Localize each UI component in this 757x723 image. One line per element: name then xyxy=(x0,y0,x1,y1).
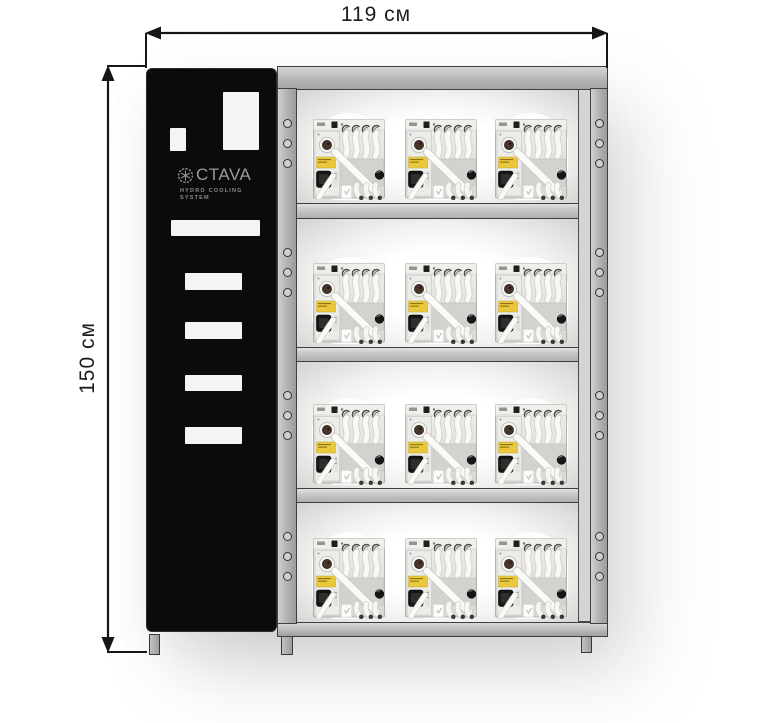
cooling-unit xyxy=(494,531,568,619)
shelf-cell-4 xyxy=(297,503,578,622)
unit-port xyxy=(332,407,338,414)
mounting-hole xyxy=(595,139,604,148)
panel-cutout-3 xyxy=(185,375,242,391)
cooling-unit xyxy=(494,112,568,200)
mounting-hole xyxy=(595,411,604,420)
cooling-unit xyxy=(494,256,568,344)
arrowhead-right xyxy=(592,27,608,40)
shelf-cell-1 xyxy=(297,90,578,203)
mounting-hole xyxy=(595,391,604,400)
mounting-hole xyxy=(283,119,292,128)
arrowhead-bottom xyxy=(102,637,115,653)
shelf-divider-1 xyxy=(297,203,578,219)
mounting-hole xyxy=(283,431,292,440)
panel-cutout-wide xyxy=(171,220,260,236)
mounting-hole xyxy=(595,532,604,541)
arrowhead-top xyxy=(102,65,115,81)
unit-port xyxy=(332,541,338,548)
unit-port xyxy=(514,122,520,129)
unit-port xyxy=(424,541,430,548)
cabinet-leg-left xyxy=(149,634,160,655)
panel-cutout-1 xyxy=(185,273,242,290)
height-dimension-arrow xyxy=(107,66,147,652)
unit-port xyxy=(514,407,520,414)
cooling-unit xyxy=(312,112,386,200)
height-dimension-label: 150 см xyxy=(76,308,100,408)
width-dimension-arrow xyxy=(146,33,607,68)
shelf-divider-3 xyxy=(297,488,578,503)
unit-port xyxy=(514,266,520,273)
rack-post-right xyxy=(590,88,608,624)
mounting-hole xyxy=(595,552,604,561)
rack-bottom-bar xyxy=(277,622,608,637)
snowflake-gear-icon xyxy=(177,167,194,184)
shelf-cell-2 xyxy=(297,219,578,347)
cooling-unit xyxy=(312,397,386,485)
mounting-hole xyxy=(595,431,604,440)
brand-logo-text: CTAVA xyxy=(196,165,251,185)
brand-panel: CTAVA HYDRO COOLING SYSTEM xyxy=(146,68,277,632)
cooling-unit xyxy=(404,256,478,344)
mounting-hole xyxy=(595,572,604,581)
mounting-hole xyxy=(283,552,292,561)
mounting-hole xyxy=(595,159,604,168)
brand-logo: CTAVA HYDRO COOLING SYSTEM xyxy=(177,165,272,202)
mounting-hole xyxy=(595,288,604,297)
panel-cutout-4 xyxy=(185,427,242,444)
unit-port xyxy=(332,122,338,129)
mounting-hole xyxy=(595,248,604,257)
shelf-divider-2 xyxy=(297,347,578,362)
cooling-unit xyxy=(494,397,568,485)
cooling-unit xyxy=(404,397,478,485)
mounting-hole xyxy=(283,268,292,277)
width-dimension-label: 119 см xyxy=(276,3,476,27)
unit-port xyxy=(424,407,430,414)
unit-port xyxy=(332,266,338,273)
brand-tagline-line2: SYSTEM xyxy=(180,195,272,202)
mounting-hole xyxy=(595,268,604,277)
dimensional-drawing: 119 см 150 см xyxy=(0,0,757,723)
mounting-hole xyxy=(283,391,292,400)
mounting-hole xyxy=(283,139,292,148)
shelf-cell-3 xyxy=(297,362,578,488)
mounting-hole xyxy=(283,159,292,168)
mounting-hole xyxy=(283,411,292,420)
cooling-unit xyxy=(404,531,478,619)
panel-cutout-2 xyxy=(185,322,242,339)
mounting-hole xyxy=(283,288,292,297)
unit-port xyxy=(424,266,430,273)
unit-port xyxy=(424,122,430,129)
mounting-hole xyxy=(283,532,292,541)
rack-post-left xyxy=(277,88,297,624)
cooling-unit xyxy=(312,256,386,344)
cooling-unit xyxy=(404,112,478,200)
panel-cutout-small xyxy=(170,128,186,151)
rack-top-bar xyxy=(277,66,608,90)
cabinet-leg-center xyxy=(281,634,293,655)
mounting-hole xyxy=(283,248,292,257)
brand-tagline-line1: HYDRO COOLING xyxy=(180,188,272,195)
mounting-hole xyxy=(595,119,604,128)
cooling-unit xyxy=(312,531,386,619)
panel-cutout-large xyxy=(223,92,259,150)
unit-port xyxy=(514,541,520,548)
mounting-hole xyxy=(283,572,292,581)
arrowhead-left xyxy=(145,27,161,40)
